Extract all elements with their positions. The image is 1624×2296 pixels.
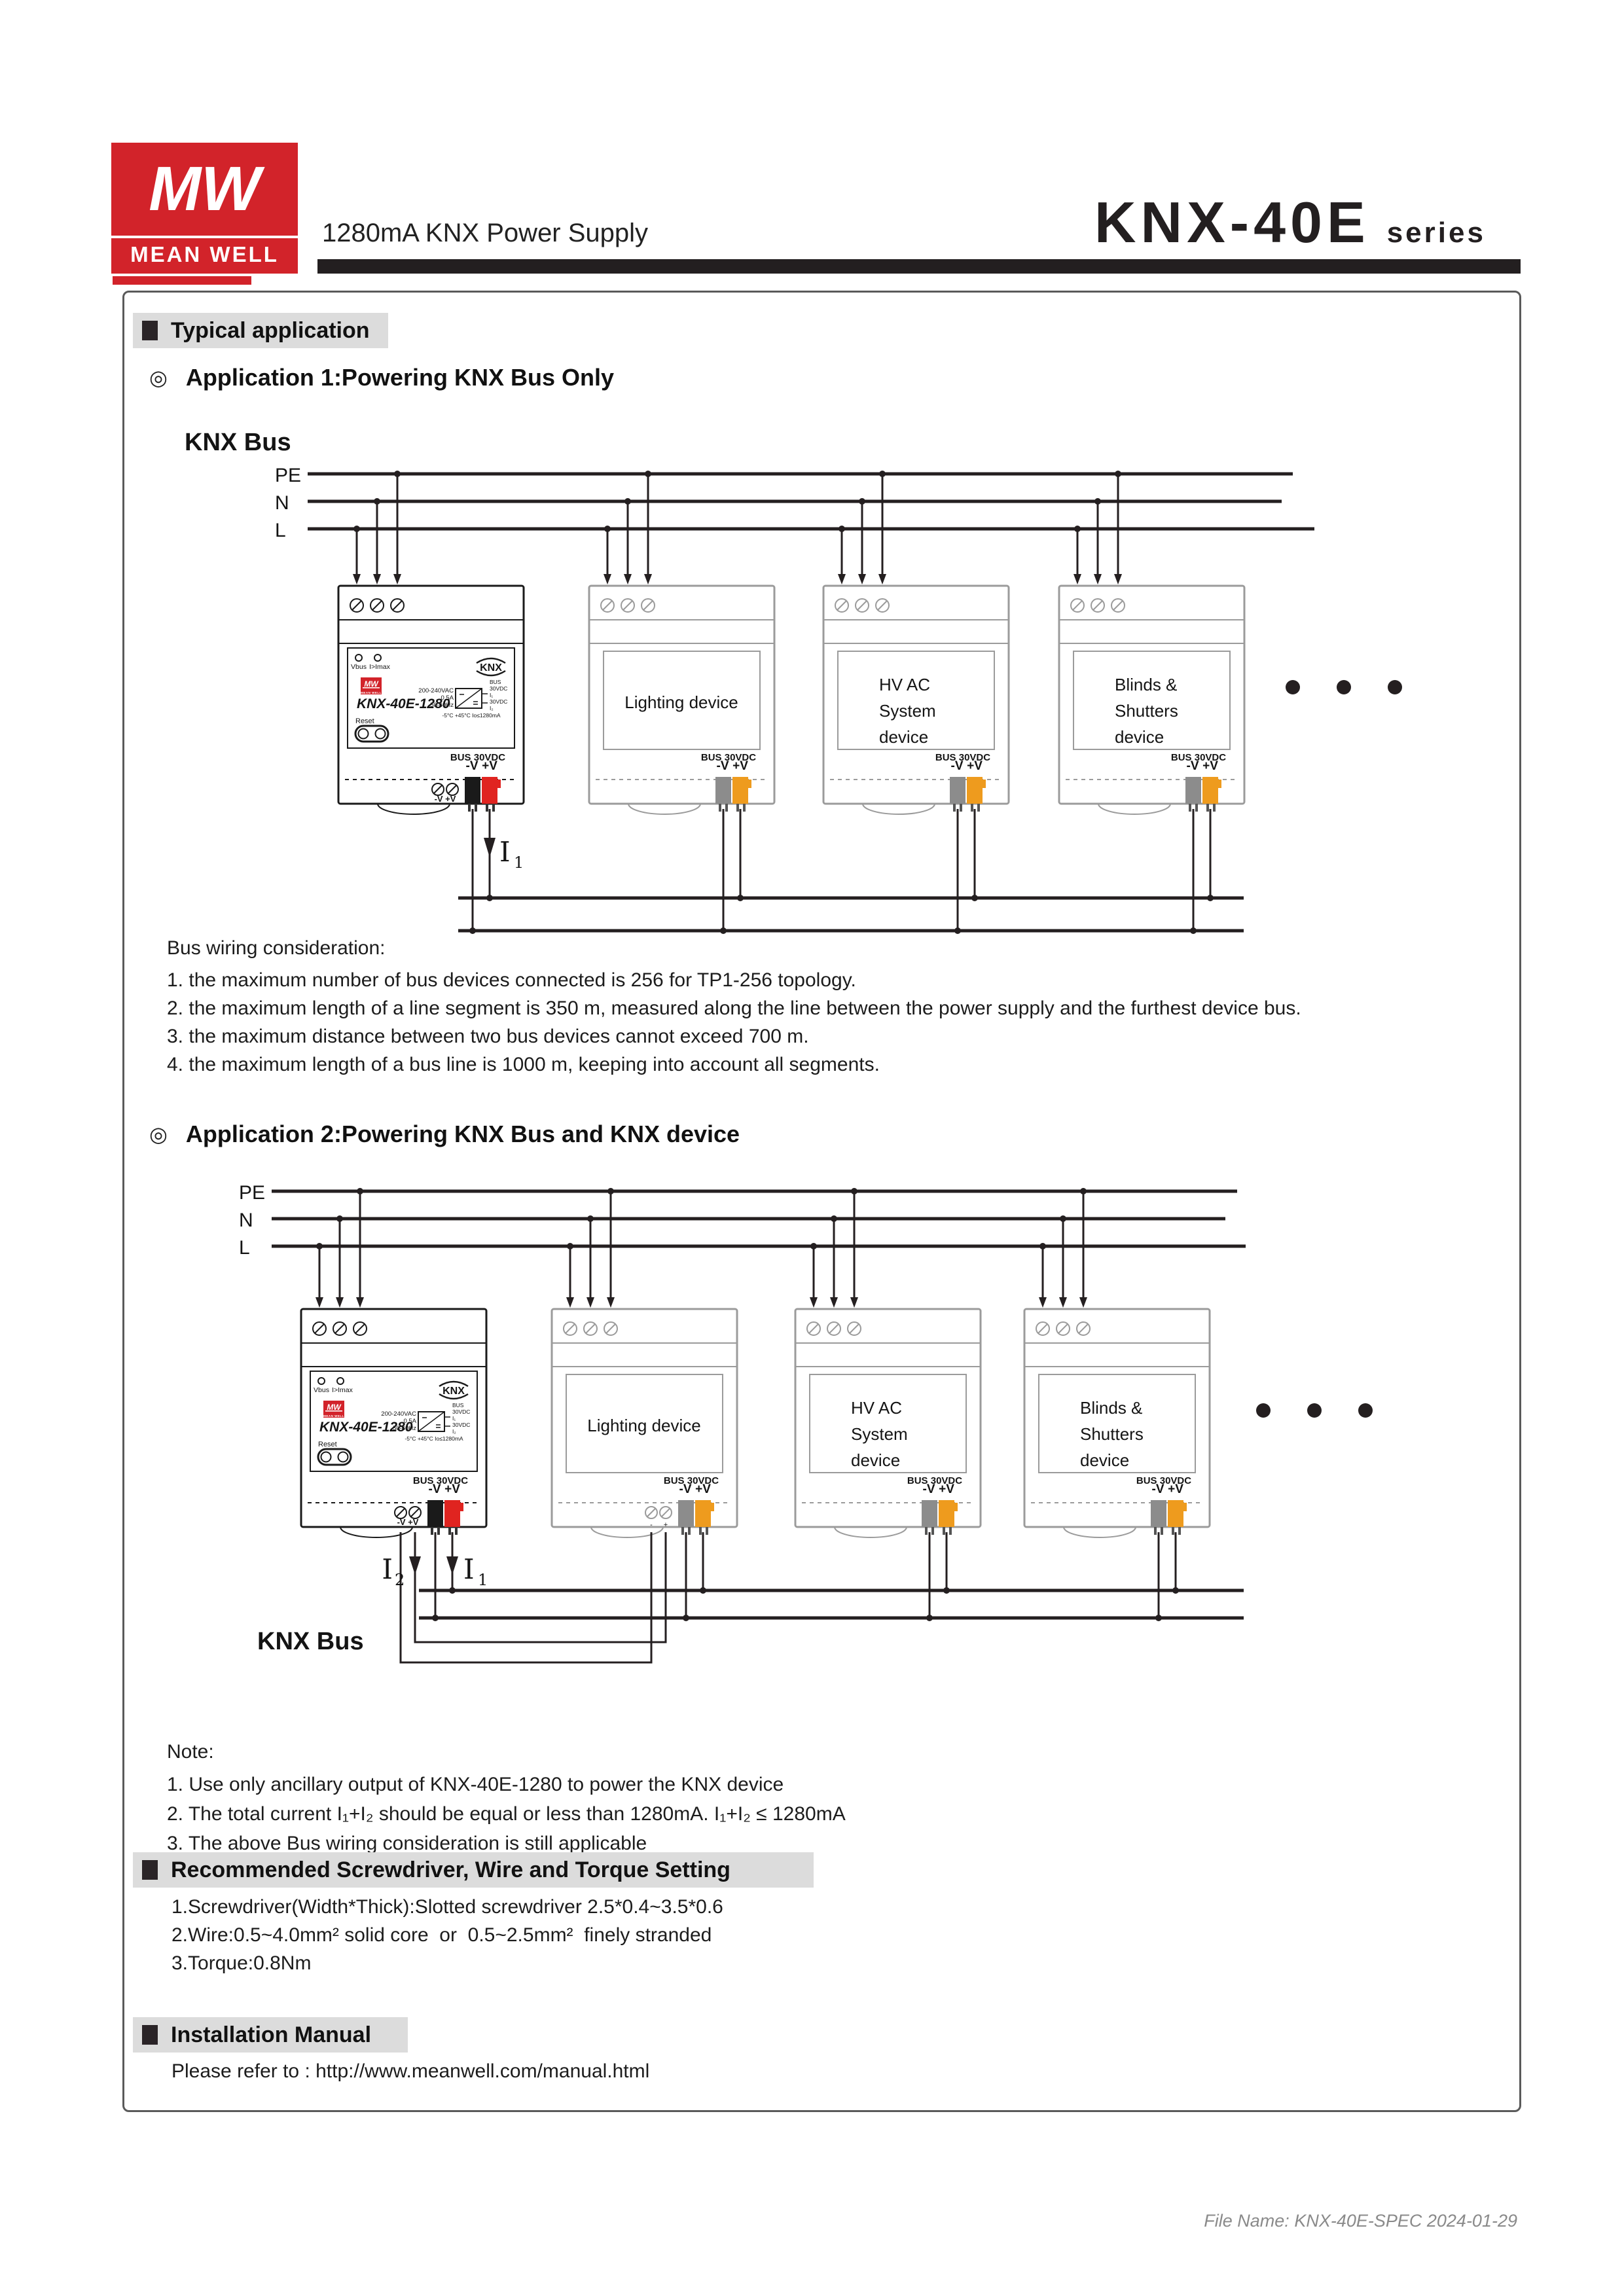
psu-led2-label: I>Imax bbox=[369, 663, 391, 671]
svg-text:MEAN WELL: MEAN WELL bbox=[361, 691, 382, 694]
svg-text:+V: +V bbox=[967, 759, 983, 773]
ancillary-wires bbox=[401, 1532, 666, 1662]
svg-text:30VDC: 30VDC bbox=[452, 1422, 470, 1428]
ellipsis-dots bbox=[1286, 680, 1402, 694]
psu-mw-logo: MW bbox=[327, 1403, 342, 1412]
note-title: Note: bbox=[167, 1740, 846, 1765]
svg-text:device: device bbox=[1115, 727, 1164, 747]
bus-connector-red bbox=[482, 777, 497, 804]
svg-text:+V: +V bbox=[444, 1482, 460, 1496]
installation-reference: Please refer to : http://www.meanwell.co… bbox=[171, 2060, 649, 2083]
svg-text:I>Imax: I>Imax bbox=[332, 1386, 353, 1394]
svg-text:-5°C +45°C Io≤1280mA: -5°C +45°C Io≤1280mA bbox=[405, 1435, 463, 1442]
svg-text:Vbus: Vbus bbox=[314, 1386, 329, 1394]
section-installation-manual: Installation Manual bbox=[133, 2017, 408, 2053]
hvac-device: HV AC System device BUS 30VDC -V +V bbox=[823, 586, 1009, 814]
black-square-icon bbox=[142, 1860, 158, 1880]
bus-wiring-title: Bus wiring consideration: bbox=[167, 936, 1301, 961]
i2-arrow bbox=[409, 1556, 421, 1575]
datasheet-page: MW MEAN WELL 1280mA KNX Power Supply KNX… bbox=[0, 0, 1624, 2296]
psu-device: Vbus I>Imax KNX MW MEAN WELL KNX-40E-128… bbox=[338, 586, 524, 814]
screwdriver-items: 1.Screwdriver(Width*Thick):Slotted screw… bbox=[171, 1893, 723, 1977]
svg-text:200-240VAC: 200-240VAC bbox=[381, 1410, 416, 1418]
rail-pe-label: PE bbox=[239, 1182, 265, 1204]
svg-text:-V: -V bbox=[466, 759, 478, 773]
svg-text:+V: +V bbox=[1202, 759, 1218, 773]
rail-n-label: N bbox=[239, 1210, 253, 1231]
bus-connector-black bbox=[427, 1500, 443, 1527]
blinds-device: Blinds & Shutters device BUS 30VDC -V +V bbox=[1024, 1309, 1210, 1537]
svg-text:-V: -V bbox=[951, 759, 964, 773]
hvac-device: HV AC System device BUS 30VDC -V +V bbox=[795, 1309, 981, 1537]
svg-text:-V: -V bbox=[1152, 1482, 1164, 1496]
svg-text:device: device bbox=[1080, 1450, 1129, 1470]
svg-text:+V: +V bbox=[695, 1482, 711, 1496]
psu-mw-logo: MW bbox=[364, 679, 379, 689]
knx-logo: KNX bbox=[442, 1386, 465, 1397]
svg-text:-5°C +45°C Io≤1280mA: -5°C +45°C Io≤1280mA bbox=[442, 712, 501, 719]
svg-text:+V: +V bbox=[732, 759, 748, 773]
svg-text:0.5A: 0.5A bbox=[441, 694, 454, 702]
device-label: Lighting device bbox=[624, 692, 738, 712]
svg-text:I₁: I₁ bbox=[452, 1415, 456, 1422]
bus-drop-wires bbox=[473, 809, 1210, 931]
i2-current-label: I bbox=[382, 1553, 393, 1585]
bus-wiring-consideration: Bus wiring consideration: 1. the maximum… bbox=[167, 936, 1301, 1079]
psu-reset-label: Reset bbox=[355, 717, 374, 725]
rail-drop-wires bbox=[357, 474, 1118, 574]
bus-wiring-item: 3. the maximum distance between two bus … bbox=[167, 1022, 1301, 1050]
rail-l-label: L bbox=[275, 520, 286, 541]
svg-text:I₁: I₁ bbox=[490, 692, 493, 698]
drop-arrowheads bbox=[316, 1297, 1087, 1308]
svg-text:1: 1 bbox=[478, 1571, 488, 1589]
rail-l-label: L bbox=[239, 1237, 250, 1259]
note-block: Note: 1. Use only ancillary output of KN… bbox=[167, 1740, 846, 1858]
psu-led1-label: Vbus bbox=[351, 663, 367, 671]
i1-arrow bbox=[446, 1556, 458, 1575]
svg-text:-V: -V bbox=[429, 1482, 441, 1496]
psu-aux-pins: -V +V bbox=[435, 794, 456, 804]
ellipsis-dots bbox=[1256, 1403, 1373, 1418]
rail-drop-wires bbox=[319, 1191, 1083, 1297]
bus-wiring-item: 4. the maximum length of a bus line is 1… bbox=[167, 1050, 1301, 1079]
svg-text:200-240VAC: 200-240VAC bbox=[418, 687, 454, 694]
svg-text:HV AC: HV AC bbox=[879, 675, 930, 694]
file-info-footer: File Name: KNX-40E-SPEC 2024-01-29 bbox=[1204, 2211, 1517, 2231]
svg-text:I₂: I₂ bbox=[452, 1428, 456, 1435]
lighting-device: - + Lighting device BUS 30VDC -V +V bbox=[552, 1309, 737, 1537]
svg-text:1: 1 bbox=[514, 853, 524, 872]
bus-wiring-item: 2. the maximum length of a line segment … bbox=[167, 994, 1301, 1022]
bus-junction-dots bbox=[469, 895, 1214, 934]
svg-text:2: 2 bbox=[395, 1571, 405, 1589]
svg-text:BUS: BUS bbox=[490, 679, 501, 685]
lighting-device: Lighting device BUS 30VDC -V +V bbox=[589, 586, 774, 814]
svg-text:30VDC: 30VDC bbox=[490, 685, 507, 692]
svg-text:+: + bbox=[664, 1521, 668, 1529]
svg-text:-: - bbox=[650, 1521, 653, 1529]
bus-junction-dots bbox=[432, 1587, 1179, 1621]
app1-knx-bus-title: KNX Bus bbox=[185, 429, 291, 456]
svg-text:-V: -V bbox=[1187, 759, 1199, 773]
svg-text:HV AC: HV AC bbox=[851, 1398, 902, 1418]
svg-text:-V +V: -V +V bbox=[397, 1517, 419, 1527]
i1-arrow bbox=[484, 838, 496, 857]
screwdriver-title: Recommended Screwdriver, Wire and Torque… bbox=[171, 1857, 731, 1883]
svg-text:I₂: I₂ bbox=[490, 705, 494, 711]
app1-diagram: KNX Bus PE N L Vbus bbox=[185, 429, 1402, 934]
section-screwdriver: Recommended Screwdriver, Wire and Torque… bbox=[133, 1852, 814, 1888]
psu-device: Vbus I>Imax KNX MW MEAN WELL KNX-40E-128… bbox=[301, 1309, 486, 1537]
blinds-device: Blinds & Shutters device BUS 30VDC -V +V bbox=[1059, 586, 1244, 814]
mains-rails bbox=[308, 474, 1314, 529]
knx-bus-lines bbox=[458, 898, 1244, 931]
rail-pe-label: PE bbox=[275, 465, 301, 486]
svg-text:device: device bbox=[851, 1450, 900, 1470]
svg-text:50-60Hz: 50-60Hz bbox=[393, 1425, 416, 1432]
bus-connector-red bbox=[444, 1500, 460, 1527]
bus-drop-wires bbox=[435, 1532, 1176, 1618]
knx-bus-lines bbox=[419, 1590, 1244, 1618]
bus-connector-black bbox=[465, 777, 480, 804]
svg-text:+V: +V bbox=[1168, 1482, 1183, 1496]
svg-text:50-60Hz: 50-60Hz bbox=[430, 702, 454, 709]
knx-logo: KNX bbox=[480, 662, 502, 673]
svg-text:-V: -V bbox=[923, 1482, 935, 1496]
svg-text:MEAN WELL: MEAN WELL bbox=[323, 1414, 344, 1418]
mains-rails bbox=[272, 1191, 1246, 1246]
svg-text:System: System bbox=[879, 701, 936, 721]
screwdriver-item: 1.Screwdriver(Width*Thick):Slotted screw… bbox=[171, 1893, 723, 1921]
app2-knx-bus-title: KNX Bus bbox=[257, 1628, 364, 1655]
svg-text:-V: -V bbox=[679, 1482, 692, 1496]
svg-text:-V: -V bbox=[717, 759, 729, 773]
svg-text:+V: +V bbox=[482, 759, 497, 773]
svg-text:Shutters: Shutters bbox=[1080, 1424, 1144, 1444]
svg-text:System: System bbox=[851, 1424, 908, 1444]
installation-title: Installation Manual bbox=[171, 2022, 371, 2048]
svg-text:BUS: BUS bbox=[452, 1402, 464, 1408]
svg-text:device: device bbox=[879, 727, 928, 747]
svg-text:Shutters: Shutters bbox=[1115, 701, 1178, 721]
svg-text:Blinds &: Blinds & bbox=[1080, 1398, 1142, 1418]
svg-text:+V: +V bbox=[939, 1482, 954, 1496]
svg-text:Blinds &: Blinds & bbox=[1115, 675, 1177, 694]
black-square-icon bbox=[142, 2025, 158, 2045]
svg-text:Reset: Reset bbox=[318, 1441, 337, 1448]
app2-diagram: PE N L Vbus I>Imax bbox=[239, 1182, 1373, 1662]
note-item: 2. The total current I₁+I₂ should be equ… bbox=[167, 1799, 846, 1829]
screwdriver-item: 3.Torque:0.8Nm bbox=[171, 1949, 723, 1977]
svg-text:0.5A: 0.5A bbox=[403, 1418, 416, 1425]
i1-current-label: I bbox=[463, 1553, 475, 1585]
svg-text:30VDC: 30VDC bbox=[452, 1408, 470, 1415]
svg-text:30VDC: 30VDC bbox=[490, 698, 507, 705]
drop-arrowheads bbox=[353, 574, 1122, 584]
i1-current-label: I bbox=[499, 836, 511, 868]
screwdriver-item: 2.Wire:0.5~4.0mm² solid core or 0.5~2.5m… bbox=[171, 1921, 723, 1949]
svg-text:Lighting device: Lighting device bbox=[587, 1416, 700, 1435]
note-item: 1. Use only ancillary output of KNX-40E-… bbox=[167, 1770, 846, 1799]
rail-n-label: N bbox=[275, 492, 289, 514]
bus-wiring-item: 1. the maximum number of bus devices con… bbox=[167, 966, 1301, 994]
